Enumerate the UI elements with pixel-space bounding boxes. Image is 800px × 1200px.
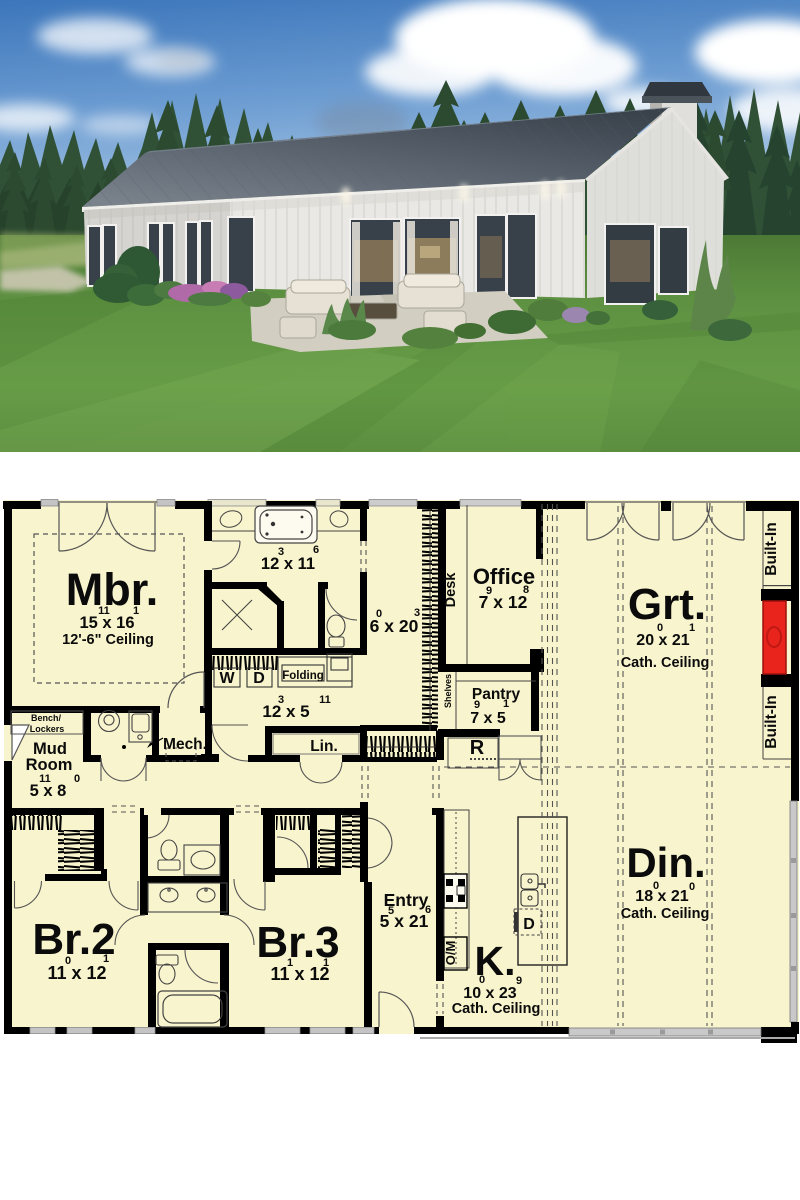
- svg-text:1: 1: [503, 698, 509, 710]
- svg-text:Lin.: Lin.: [310, 738, 338, 755]
- svg-text:Room: Room: [26, 756, 73, 774]
- svg-text:11 x 12: 11 x 12: [270, 964, 329, 984]
- svg-text:0: 0: [657, 622, 663, 634]
- svg-text:5 x 8: 5 x 8: [30, 782, 67, 800]
- svg-text:7 x 5: 7 x 5: [470, 710, 506, 727]
- svg-text:9: 9: [486, 585, 492, 597]
- svg-text:Cath. Ceiling: Cath. Ceiling: [621, 906, 710, 922]
- svg-text:0: 0: [376, 608, 382, 620]
- svg-text:1: 1: [133, 605, 139, 617]
- svg-text:1: 1: [689, 622, 695, 634]
- svg-text:Built-In: Built-In: [763, 695, 780, 748]
- svg-text:12 x 11: 12 x 11: [261, 555, 315, 573]
- svg-text:1: 1: [287, 957, 293, 969]
- svg-text:Cath. Ceiling: Cath. Ceiling: [452, 1001, 541, 1017]
- svg-text:Built-In: Built-In: [763, 522, 780, 575]
- svg-text:D: D: [253, 670, 265, 687]
- svg-text:Bench/: Bench/: [31, 713, 62, 723]
- svg-text:11: 11: [98, 605, 110, 617]
- svg-text:8: 8: [523, 584, 529, 596]
- svg-text:Mbr.: Mbr.: [66, 564, 159, 615]
- svg-text:Mech.: Mech.: [163, 736, 207, 753]
- svg-text:1: 1: [103, 953, 109, 965]
- svg-text:1: 1: [323, 957, 329, 969]
- svg-text:W: W: [219, 670, 235, 687]
- svg-text:20 x 21: 20 x 21: [636, 632, 689, 649]
- svg-text:12 x 5: 12 x 5: [262, 702, 309, 721]
- svg-text:D: D: [523, 916, 535, 933]
- svg-text:5: 5: [388, 905, 394, 917]
- svg-text:9: 9: [474, 699, 480, 711]
- svg-text:0: 0: [65, 955, 71, 967]
- svg-text:Cath. Ceiling: Cath. Ceiling: [621, 655, 710, 671]
- svg-text:11 x 12: 11 x 12: [47, 963, 106, 983]
- svg-text:Lockers: Lockers: [30, 724, 65, 734]
- svg-text:0: 0: [653, 880, 659, 892]
- svg-text:0: 0: [74, 773, 80, 785]
- svg-text:O/M: O/M: [443, 941, 458, 966]
- svg-text:3: 3: [414, 607, 420, 619]
- svg-text:0: 0: [479, 974, 485, 986]
- svg-text:Shelves: Shelves: [443, 674, 453, 708]
- svg-text:3: 3: [278, 694, 284, 706]
- svg-text:R: R: [470, 737, 485, 759]
- svg-text:9: 9: [516, 975, 522, 987]
- svg-text:0: 0: [689, 881, 695, 893]
- svg-text:6: 6: [313, 544, 319, 556]
- svg-text:Din.: Din.: [626, 839, 705, 886]
- svg-text:3: 3: [278, 546, 284, 558]
- svg-text:10 x 23: 10 x 23: [463, 985, 516, 1002]
- svg-text:Desk: Desk: [443, 572, 459, 608]
- svg-text:11: 11: [319, 694, 331, 706]
- svg-text:6: 6: [425, 904, 431, 916]
- svg-text:12'-6" Ceiling: 12'-6" Ceiling: [62, 632, 154, 648]
- svg-text:Folding: Folding: [282, 670, 324, 682]
- svg-text:18 x 21: 18 x 21: [635, 888, 688, 905]
